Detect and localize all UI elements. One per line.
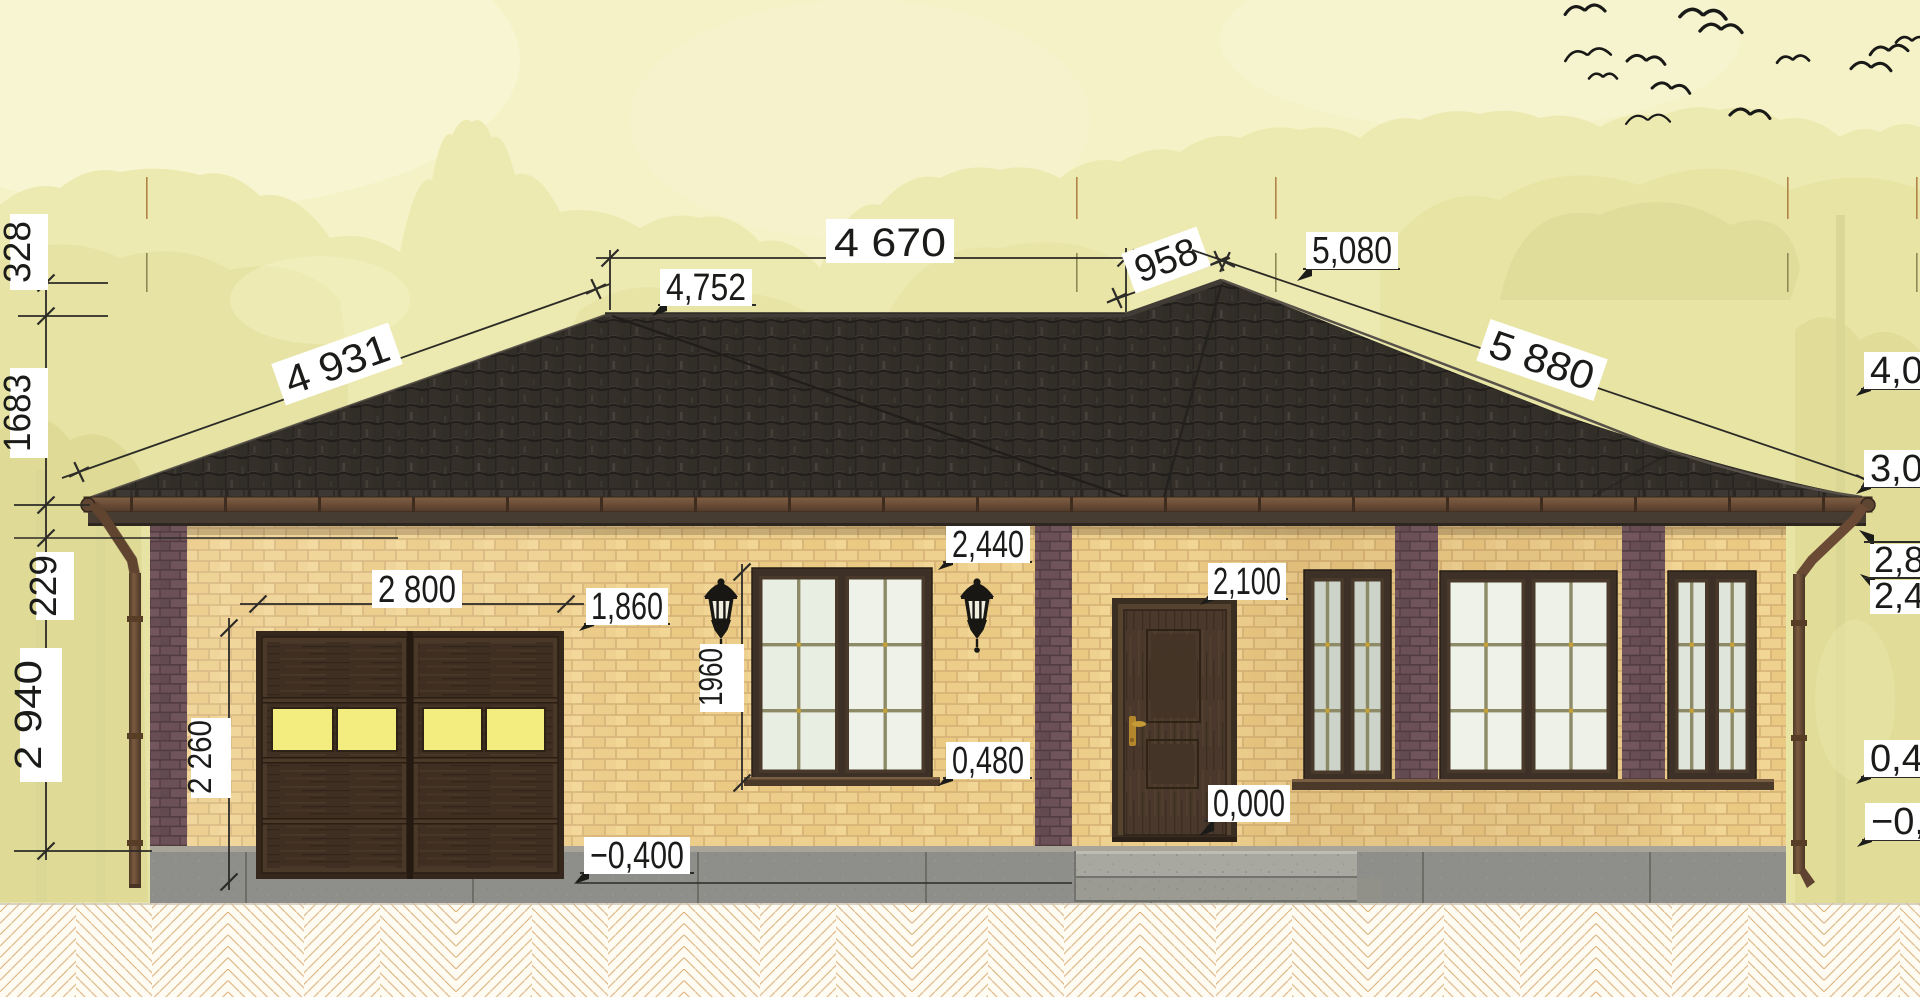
svg-text:3,069: 3,069 [1870, 448, 1920, 490]
svg-text:2,440: 2,440 [952, 524, 1024, 566]
svg-text:4,752: 4,752 [666, 267, 746, 309]
svg-text:4,069: 4,069 [1870, 350, 1920, 392]
svg-text:5,080: 5,080 [1312, 230, 1392, 272]
svg-text:1683: 1683 [0, 374, 39, 452]
svg-text:4 670: 4 670 [834, 221, 946, 265]
svg-text:1,860: 1,860 [591, 586, 663, 628]
svg-text:−0,400: −0,400 [590, 835, 684, 877]
svg-text:0,480: 0,480 [952, 740, 1024, 782]
svg-text:0,480: 0,480 [1870, 738, 1920, 780]
svg-text:2,100: 2,100 [1213, 561, 1281, 603]
svg-text:2 940: 2 940 [8, 660, 50, 770]
svg-text:−0,100: −0,100 [1871, 801, 1920, 843]
svg-text:2,840: 2,840 [1874, 539, 1920, 580]
svg-text:328: 328 [0, 221, 39, 283]
svg-text:2 800: 2 800 [378, 569, 456, 611]
svg-text:2 260: 2 260 [181, 720, 218, 794]
svg-text:229: 229 [23, 555, 65, 617]
svg-text:2,440: 2,440 [1874, 575, 1920, 616]
svg-text:1960: 1960 [692, 648, 729, 706]
svg-text:0,000: 0,000 [1213, 783, 1285, 825]
